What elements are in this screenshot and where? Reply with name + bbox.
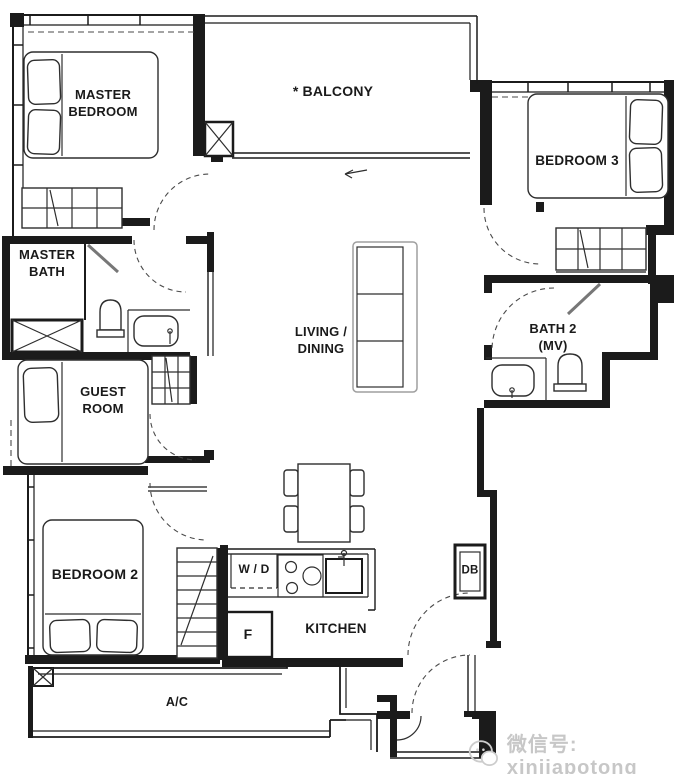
- bedroom3-label: BEDROOM 3: [535, 152, 619, 170]
- stove: [278, 555, 323, 597]
- balcony-slide-arrow: [345, 170, 367, 178]
- bath2-toilet: [554, 354, 586, 391]
- bedroom2-wardrobe: [177, 548, 217, 658]
- bath2-label: BATH 2 (MV): [529, 321, 576, 355]
- master-bath-label: MASTER BATH: [19, 247, 75, 281]
- watermark-text: 微信号: xinjiapotong: [507, 728, 685, 774]
- dining-table: [284, 464, 364, 542]
- ac-xbox: [33, 668, 53, 686]
- master-toilet: [97, 300, 124, 337]
- bath2-sink: [486, 358, 546, 400]
- bedroom3-bed: [528, 94, 668, 198]
- fridge-label: F: [244, 625, 253, 643]
- kitchen-label: KITCHEN: [305, 620, 366, 638]
- guest-wardrobe: [152, 356, 190, 404]
- bath2-screen: [568, 284, 600, 314]
- ac-ledge-outline: [28, 661, 377, 752]
- living-dining-label: LIVING / DINING: [295, 324, 347, 358]
- guest-room-label: GUEST ROOM: [80, 384, 126, 418]
- master-bedroom-label: MASTER BEDROOM: [68, 87, 137, 121]
- bedroom3-door-arc: [484, 208, 540, 264]
- balcony-label: * BALCONY: [293, 82, 373, 100]
- bedroom2-label: BEDROOM 2: [52, 565, 139, 583]
- washer-dryer-label: W / D: [239, 562, 270, 578]
- master-shower-screen: [88, 245, 118, 272]
- watermark: 微信号: xinjiapotong: [468, 728, 685, 774]
- master-wardrobe: [22, 188, 122, 228]
- wechat-icon: [468, 736, 499, 772]
- floorplan-page: MASTER BEDROOM * BALCONY BEDROOM 3 MASTE…: [0, 0, 685, 774]
- entry-vestibule-arc: [408, 593, 470, 655]
- duct-xbox: [205, 122, 233, 156]
- shower-box: [12, 320, 82, 352]
- kitchen-sink: [326, 551, 362, 594]
- bedroom2-bed: [43, 520, 143, 655]
- sofa: [353, 242, 417, 392]
- master-sink: [128, 310, 190, 352]
- master-bath-door-arc: [134, 240, 186, 292]
- ac-label: A/C: [166, 694, 188, 710]
- guest-room-door-arc: [150, 414, 196, 460]
- entrance-door-arc: [412, 655, 470, 713]
- master-bedroom-door-arc: [154, 174, 210, 230]
- bedroom3-wardrobe: [556, 228, 646, 270]
- db-label: DB: [461, 564, 478, 579]
- store-door-arc: [397, 716, 421, 740]
